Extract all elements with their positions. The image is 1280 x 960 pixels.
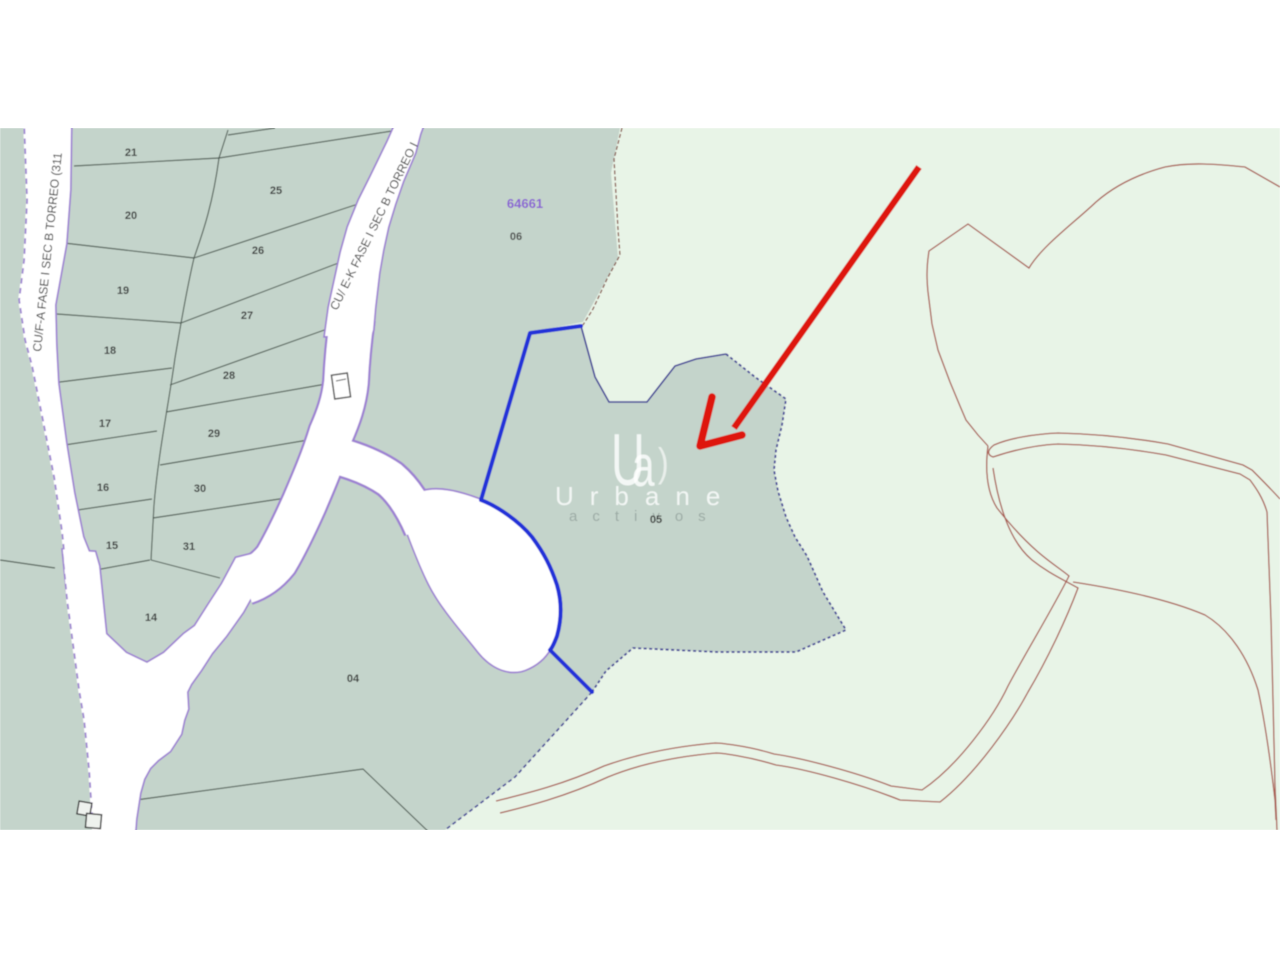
svg-text:Urbane: Urbane [555,481,736,511]
svg-text:25: 25 [270,185,282,197]
svg-text:31: 31 [183,541,195,553]
svg-text:14: 14 [145,612,158,624]
svg-text:06: 06 [510,231,522,243]
svg-text:29: 29 [208,428,220,440]
svg-text:18: 18 [104,345,116,357]
svg-text:27: 27 [241,310,253,322]
svg-text:20: 20 [125,210,137,222]
svg-text:19: 19 [117,285,129,297]
svg-text:16: 16 [97,482,109,494]
svg-text:28: 28 [223,370,235,382]
svg-text:64661: 64661 [507,196,543,211]
svg-text:15: 15 [106,540,118,552]
svg-text:26: 26 [252,245,264,257]
svg-text:21: 21 [125,147,137,159]
svg-text:): ) [658,440,669,485]
svg-text:activos: activos [569,508,721,525]
svg-text:05: 05 [650,514,662,526]
svg-text:04: 04 [347,673,360,685]
svg-text:17: 17 [99,418,111,430]
svg-text:30: 30 [194,483,206,495]
